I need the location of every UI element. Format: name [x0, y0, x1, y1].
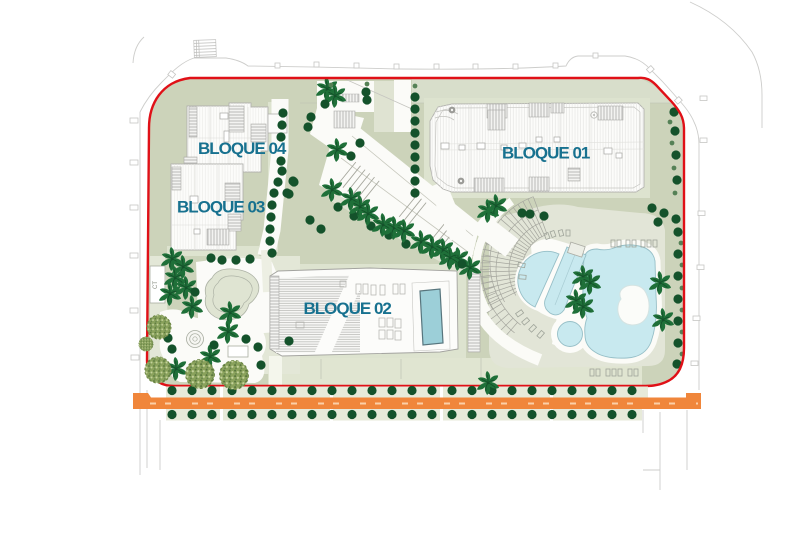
svg-text:BLOQUE 02: BLOQUE 02	[304, 299, 392, 318]
svg-text:BLOQUE 03: BLOQUE 03	[177, 198, 265, 217]
svg-text:BLOQUE 01: BLOQUE 01	[502, 144, 590, 163]
svg-text:BLOQUE 04: BLOQUE 04	[198, 139, 287, 158]
svg-text:CT: CT	[153, 281, 159, 289]
